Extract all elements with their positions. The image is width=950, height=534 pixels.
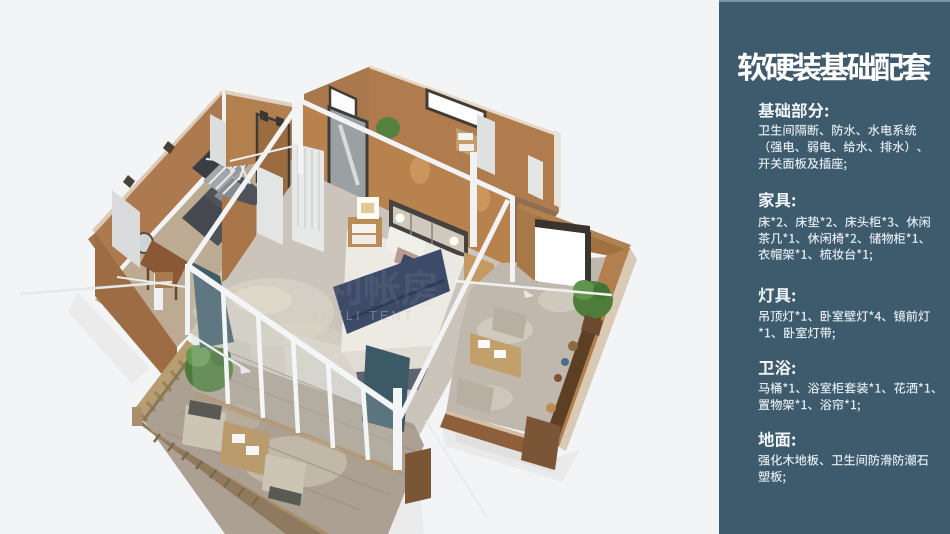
svg-text:XUELI TENT: XUELI TENT (310, 308, 415, 323)
